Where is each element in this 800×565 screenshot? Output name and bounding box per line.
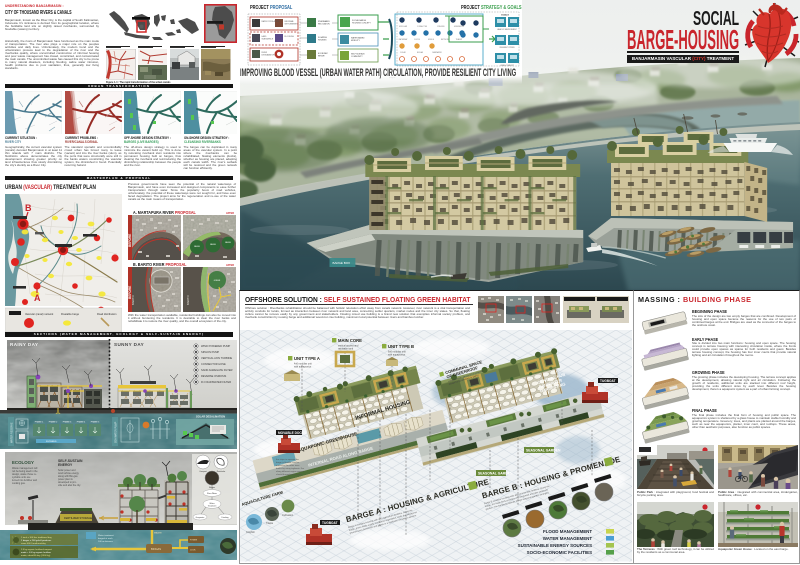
svg-text:RAPID POPULATION: RAPID POPULATION bbox=[262, 20, 280, 23]
svg-text:SOLAR: SOLAR bbox=[400, 51, 406, 54]
svg-text:Greywater: Greywater bbox=[196, 516, 205, 519]
svg-text:GREEN: GREEN bbox=[214, 280, 221, 282]
svg-text:A: A bbox=[34, 293, 41, 303]
svg-text:cooking gas.: cooking gas. bbox=[12, 482, 26, 485]
svg-text:Floatable barge: Floatable barge bbox=[61, 312, 80, 316]
svg-text:UNIT TYPE A: UNIT TYPE A bbox=[294, 356, 320, 361]
svg-text:MOBILITY: MOBILITY bbox=[351, 40, 361, 42]
svg-text:B: B bbox=[25, 203, 32, 213]
svg-text:RELOCATION: RELOCATION bbox=[318, 22, 330, 25]
svg-text:WIND POWERED PUMP: WIND POWERED PUMP bbox=[201, 344, 231, 348]
svg-text:BARGE BOX: BARGE BOX bbox=[333, 261, 351, 265]
svg-text:HEALTHY ENVIRONMENT: HEALTHY ENVIRONMENT bbox=[497, 28, 516, 31]
svg-text:along different region aspect: along different region aspect bbox=[276, 470, 304, 473]
svg-text:WATER BASED: WATER BASED bbox=[351, 37, 365, 40]
svg-text:moved to the other river-: moved to the other river- bbox=[276, 464, 300, 467]
svg-text:BIOGAS: BIOGAS bbox=[151, 547, 161, 551]
svg-text:BARITO: BARITO bbox=[131, 295, 135, 305]
svg-text:HOUSING: HOUSING bbox=[318, 39, 327, 41]
svg-text:PHASE 2: PHASE 2 bbox=[49, 420, 58, 423]
svg-text:STACKED: STACKED bbox=[437, 25, 445, 28]
svg-text:GREENROOF: GREENROOF bbox=[454, 26, 464, 28]
svg-text:MODULAR: MODULAR bbox=[399, 25, 408, 28]
svg-text:Road distribution: Road distribution bbox=[97, 312, 117, 316]
svg-text:R.O RAINWATER FILTER: R.O RAINWATER FILTER bbox=[201, 380, 231, 384]
svg-text:ENERGY: ENERGY bbox=[58, 463, 73, 467]
svg-text:FLOODING: FLOODING bbox=[285, 36, 295, 38]
svg-text:the ships to operate the: the ships to operate the bbox=[276, 458, 300, 461]
svg-text:Tilapia: Tilapia bbox=[266, 522, 274, 525]
svg-text:TRANSIT: TRANSIT bbox=[456, 38, 463, 41]
svg-text:SEA WATER PUMP: SEA WATER PUMP bbox=[115, 421, 118, 443]
svg-text:PHASE 1: PHASE 1 bbox=[35, 420, 44, 423]
svg-text:Compost: Compost bbox=[199, 470, 207, 473]
svg-text:vide and also the city.: vide and also the city. bbox=[58, 484, 81, 487]
svg-text:MOBILE: MOBILE bbox=[428, 39, 434, 41]
svg-text:PHASE 4: PHASE 4 bbox=[77, 420, 86, 423]
svg-text:MAIN CORE: MAIN CORE bbox=[338, 338, 362, 343]
svg-text:with aquaponics: with aquaponics bbox=[294, 366, 312, 369]
svg-text:SOCIO-ECONOMIC FACILITIES: SOCIO-ECONOMIC FACILITIES bbox=[526, 550, 591, 555]
svg-text:SEASONAL GARDEN: SEASONAL GARDEN bbox=[526, 448, 561, 452]
svg-text:made, about/60 day (1500 kg): made, about/60 day (1500 kg) bbox=[21, 554, 50, 557]
svg-text:SOCIAL BARGE: SOCIAL BARGE bbox=[352, 19, 367, 22]
svg-text:PHASE 5: PHASE 5 bbox=[91, 420, 100, 423]
svg-text:BARITO: BARITO bbox=[186, 295, 190, 305]
svg-text:1 biogas = 200 gr/m3 produces: 1 biogas = 200 gr/m3 produces bbox=[21, 539, 52, 542]
svg-text:SETTLEMENTS: SETTLEMENTS bbox=[285, 23, 299, 25]
svg-text:ECOLOGY: ECOLOGY bbox=[12, 460, 34, 465]
svg-text:Drinking: Drinking bbox=[222, 516, 229, 519]
svg-text:RAINY DAY: RAINY DAY bbox=[10, 342, 38, 347]
svg-text:FLOOD MANAGEMENT: FLOOD MANAGEMENT bbox=[543, 529, 592, 534]
svg-text:FERTILIZER STORAGE: FERTILIZER STORAGE bbox=[64, 516, 92, 520]
svg-text:SUBSIDENCE: SUBSIDENCE bbox=[262, 38, 274, 40]
svg-text:CONNECTOR HOSE: CONNECTOR HOSE bbox=[201, 362, 226, 366]
svg-text:Vascular (canal) network: Vascular (canal) network bbox=[25, 312, 54, 316]
svg-text:SIPHON PUMP: SIPHON PUMP bbox=[201, 350, 219, 354]
svg-text:banks by using tugboats. For: banks by using tugboats. For bbox=[276, 467, 304, 470]
svg-text:COMMUNITY: COMMUNITY bbox=[351, 56, 363, 58]
svg-text:REVERSE OSMOSIS: REVERSE OSMOSIS bbox=[201, 374, 226, 378]
svg-text:WATER RESERVE: WATER RESERVE bbox=[11, 422, 14, 443]
svg-text:WATERWAY: WATERWAY bbox=[399, 38, 409, 41]
svg-text:SEASONAL GARDEN: SEASONAL GARDEN bbox=[478, 471, 513, 475]
svg-text:FILTERED: FILTERED bbox=[46, 441, 57, 443]
svg-text:1 tank = 100 liter traditional: 1 tank = 100 liter traditional bag bbox=[21, 536, 52, 539]
svg-text:SAND AGREGATE FILTER: SAND AGREGATE FILTER bbox=[201, 368, 233, 372]
svg-text:HOUSING CONCEPT: HOUSING CONCEPT bbox=[352, 23, 371, 25]
svg-text:SUNNY DAY: SUNNY DAY bbox=[114, 342, 144, 347]
svg-text:100 m distance: 100 m distance bbox=[98, 540, 114, 543]
svg-text:TUGBOAT: TUGBOAT bbox=[322, 521, 338, 525]
svg-text:some 400 It methane/day: some 400 It methane/day bbox=[21, 542, 47, 545]
svg-text:SOLAR DESALINATION: SOLAR DESALINATION bbox=[196, 414, 225, 418]
svg-text:Water: Water bbox=[210, 502, 215, 505]
svg-text:PHASE 3: PHASE 3 bbox=[63, 420, 72, 423]
svg-text:DOCKS: DOCKS bbox=[414, 39, 420, 41]
svg-text:WATER MANAGEMENT: WATER MANAGEMENT bbox=[542, 536, 592, 541]
svg-text:should throughout the year.: should throughout the year. bbox=[276, 473, 303, 476]
svg-text:SELF SUSTAIN: SELF SUSTAIN bbox=[351, 53, 365, 56]
svg-text:made + 0.5 kg organic fertiliz: made + 0.5 kg organic fertilizer bbox=[21, 551, 51, 554]
svg-text:COOK: COOK bbox=[190, 549, 196, 551]
svg-text:RESILIENT CITIZEN: RESILIENT CITIZEN bbox=[500, 47, 516, 49]
svg-text:barge is flexible, can be: barge is flexible, can be bbox=[276, 461, 300, 464]
svg-text:CONNECTED: CONNECTED bbox=[417, 26, 428, 28]
svg-text:River Water: River Water bbox=[207, 492, 217, 495]
svg-text:REVIVE: REVIVE bbox=[318, 55, 325, 57]
svg-text:POWER: POWER bbox=[190, 539, 198, 541]
svg-text:BIOGAS: BIOGAS bbox=[417, 51, 423, 54]
svg-text:BEFORE: BEFORE bbox=[128, 234, 132, 247]
svg-text:Treatment: Treatment bbox=[208, 505, 217, 508]
svg-text:RAINWATER: RAINWATER bbox=[432, 51, 442, 54]
svg-text:barged at each: barged at each bbox=[98, 537, 113, 540]
svg-text:Biogas: Biogas bbox=[209, 487, 215, 489]
svg-text:UNIT TYPE B: UNIT TYPE B bbox=[388, 344, 414, 349]
svg-text:with aquaponics: with aquaponics bbox=[388, 354, 406, 357]
svg-text:WASTE: WASTE bbox=[154, 531, 162, 534]
svg-text:Crayfish: Crayfish bbox=[246, 531, 255, 534]
svg-text:Cultivation: Cultivation bbox=[282, 514, 294, 517]
svg-text:Rain/solar: Rain/solar bbox=[217, 470, 226, 473]
svg-text:GOALS: GOALS bbox=[501, 14, 509, 17]
svg-text:Water treatment: Water treatment bbox=[98, 534, 114, 537]
svg-text:MOVABLE DOCKS: MOVABLE DOCKS bbox=[278, 431, 306, 435]
svg-text:VERTICAL AXIS TURBINE: VERTICAL AXIS TURBINE bbox=[201, 356, 232, 360]
svg-text:rainwater tank: rainwater tank bbox=[338, 348, 354, 351]
svg-text:DEGRADATION: DEGRADATION bbox=[262, 53, 276, 56]
svg-text:TUGBOAT: TUGBOAT bbox=[600, 379, 616, 383]
svg-text:2.5 kg organic fertilizer/comp: 2.5 kg organic fertilizer/compost bbox=[21, 548, 52, 551]
svg-text:SUSTAINABLE ENERGY SOURCES: SUSTAINABLE ENERGY SOURCES bbox=[517, 543, 591, 548]
